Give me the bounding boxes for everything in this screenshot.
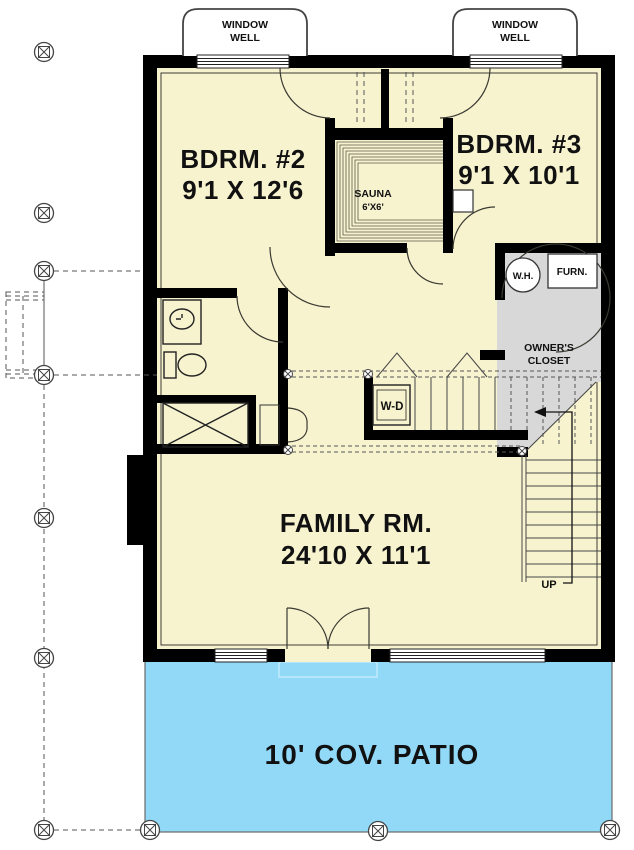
window-well-1-label-2: WELL [230, 32, 260, 44]
owners-closet-label-2: CLOSET [528, 355, 571, 367]
bedroom2-label: BDRM. #2 [180, 144, 305, 174]
water-heater-label: W.H. [513, 271, 534, 282]
mechanical-room: W.H. FURN. [506, 254, 597, 292]
bedroom2-window [197, 55, 289, 68]
floor-plan-canvas: 10' COV. PATIO WINDOW WELL WINDOW WELL [0, 0, 634, 850]
family-room-window-right [390, 649, 545, 662]
window-well-2-label-2: WELL [500, 32, 530, 44]
sauna-label: SAUNA [354, 188, 392, 200]
covered-patio: 10' COV. PATIO [145, 660, 612, 832]
sauna-dims: 6'X6' [362, 202, 383, 213]
family-room-label: FAMILY RM. [280, 508, 432, 538]
bedroom2-dims: 9'1 X 12'6 [182, 175, 303, 205]
deck-stairs-outline [6, 292, 44, 378]
owners-closet-label-1: OWNER'S [524, 342, 574, 354]
stairs-up-label: UP [541, 579, 556, 591]
furnace-label: FURN. [557, 267, 588, 278]
bedroom3-label: BDRM. #3 [456, 129, 581, 159]
family-room-window-left [215, 649, 267, 662]
floor-plan-page: 10' COV. PATIO WINDOW WELL WINDOW WELL [0, 0, 634, 850]
washer-dryer-label: W-D [381, 401, 404, 413]
window-well-2-label-1: WINDOW [492, 19, 538, 31]
fireplace-chase [127, 455, 144, 545]
bedroom3-dims: 9'1 X 10'1 [458, 160, 579, 190]
bedroom3-window [470, 55, 562, 68]
window-well-2: WINDOW WELL [453, 9, 577, 56]
owners-closet: OWNER'S CLOSET [524, 342, 574, 367]
sauna-heater-box [453, 190, 473, 212]
patio-label: 10' COV. PATIO [265, 739, 480, 770]
window-well-1: WINDOW WELL [183, 9, 307, 56]
window-well-1-label-1: WINDOW [222, 19, 268, 31]
family-room-dims: 24'10 X 11'1 [281, 540, 431, 570]
